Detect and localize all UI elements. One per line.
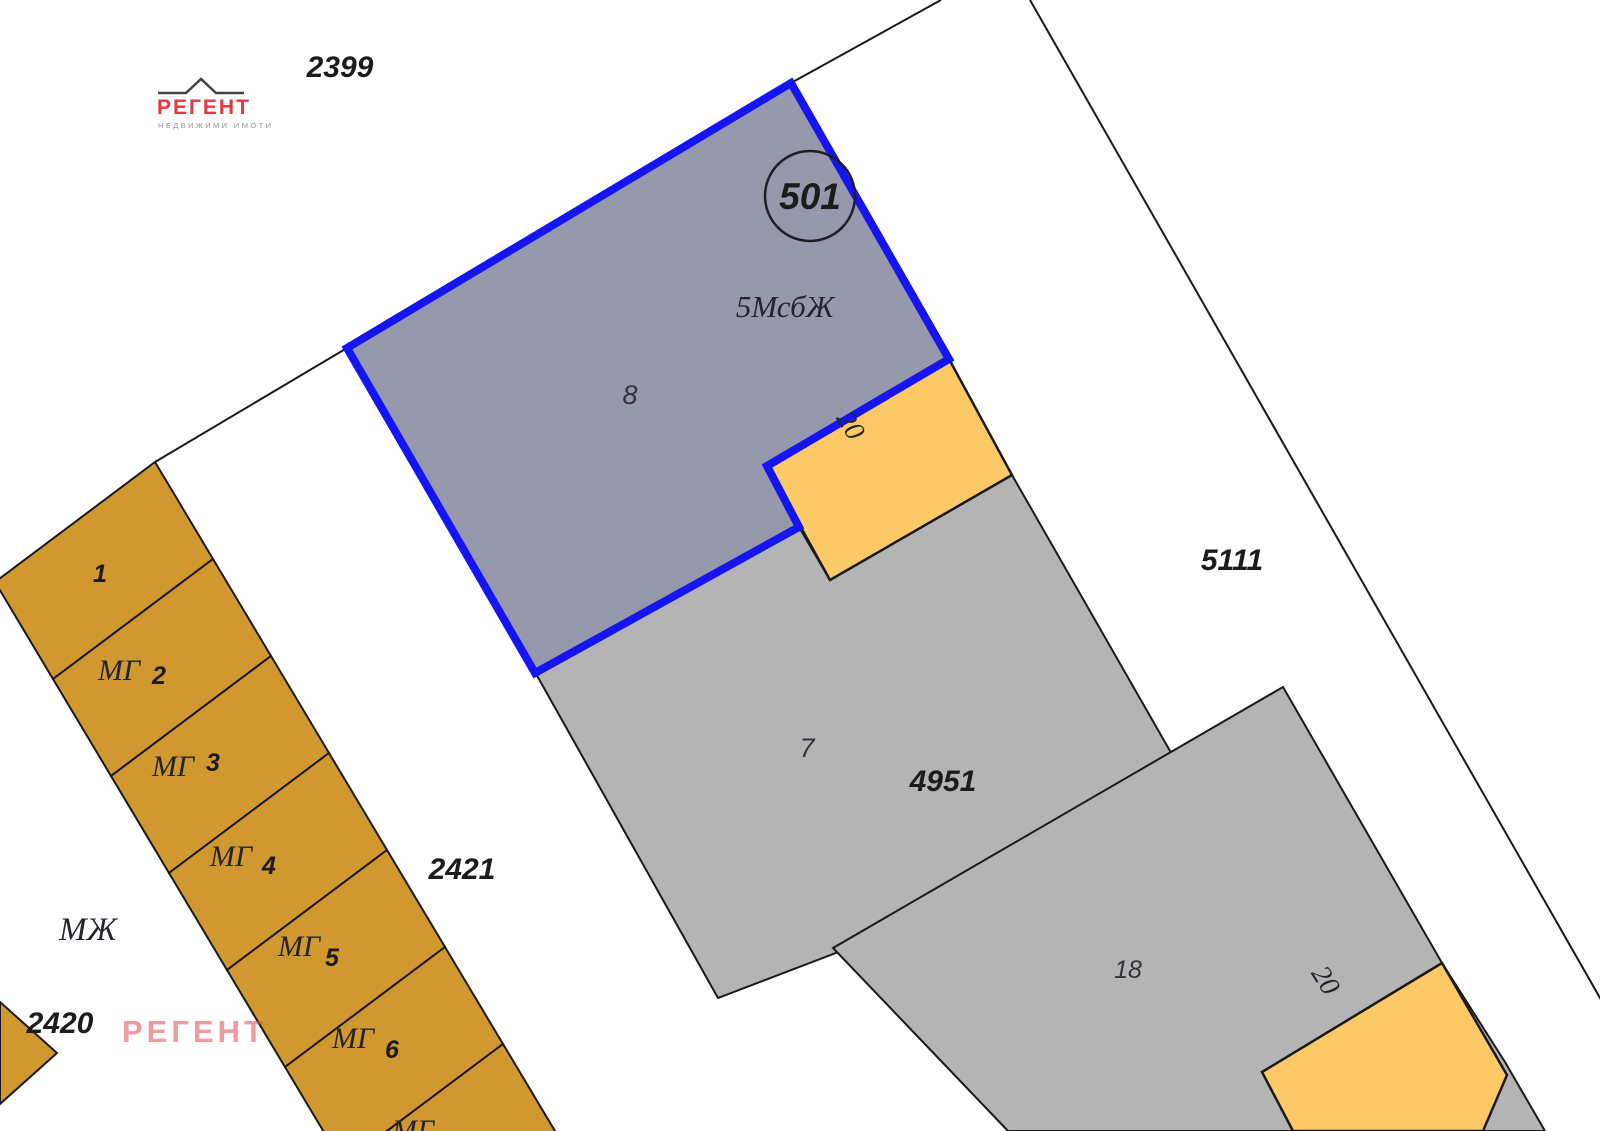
parcel-501-number: 501: [779, 176, 841, 217]
label-building-18: 18: [1114, 956, 1142, 984]
logo-brand-text: РЕГЕНТ: [157, 96, 251, 119]
label-mz: МЖ: [58, 912, 118, 948]
label-building-7: 7: [799, 733, 815, 763]
garage-2-prefix: МГ: [97, 654, 142, 687]
label-building-8: 8: [622, 380, 637, 410]
garage-5-prefix: МГ: [277, 930, 322, 963]
label-building-type: 5МсбЖ: [736, 289, 836, 324]
label-2421: 2421: [428, 853, 496, 886]
label-2399: 2399: [306, 51, 374, 84]
boundary-line-west: [155, 348, 347, 462]
garage-3-prefix: МГ: [151, 750, 196, 783]
garage-4-number: 4: [261, 852, 276, 880]
garage-3-number: 3: [206, 749, 220, 777]
garage-4-prefix: МГ: [209, 840, 254, 873]
garage-5-number: 5: [325, 944, 340, 972]
brand-logo: РЕГЕНТ НЕДВИЖИМИ ИМОТИ: [157, 79, 273, 130]
watermark-text: РЕГЕНТ: [122, 1014, 267, 1049]
label-5111: 5111: [1201, 544, 1263, 577]
logo-roof-icon: [158, 79, 244, 93]
logo-tagline-text: НЕДВИЖИМИ ИМОТИ: [158, 121, 273, 130]
cadastral-map: 501 2399 5МсбЖ 8 20 5111 7 4951 2421 МЖ …: [0, 0, 1600, 1131]
label-2420: 2420: [26, 1007, 94, 1040]
garage-2-number: 2: [151, 662, 166, 690]
garage-1-number: 1: [93, 560, 107, 588]
garage-7-prefix: МГ: [391, 1114, 436, 1131]
garage-6-prefix: МГ: [331, 1022, 376, 1055]
garage-6-number: 6: [385, 1036, 400, 1064]
label-4951: 4951: [909, 765, 977, 798]
boundary-line-north: [791, 0, 941, 83]
